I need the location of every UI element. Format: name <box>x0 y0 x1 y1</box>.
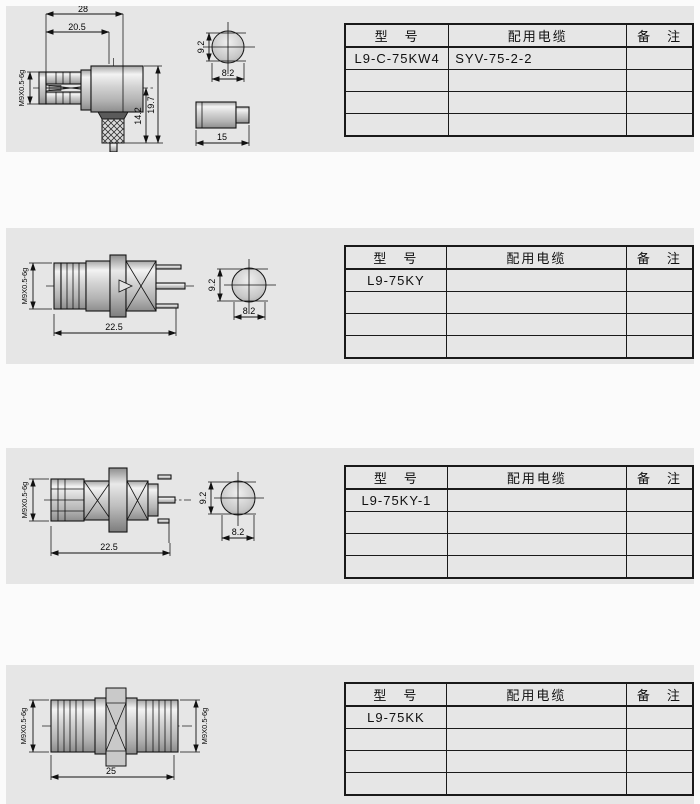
table-header-row: 型 号 配用电缆 备 注 <box>345 246 693 269</box>
table-row: L9-75KY <box>345 269 693 292</box>
table-header-row: 型 号 配用电缆 备 注 <box>345 24 693 47</box>
table-row <box>345 92 693 114</box>
table-row <box>345 512 693 534</box>
remarks-cell <box>626 706 693 729</box>
section-panel-2: M9X0.5-6g 22.5 9.2 8.2 型 号 配用电缆 备 注 L9-7… <box>6 228 694 364</box>
cable-cell <box>446 773 626 796</box>
header-remarks: 备 注 <box>627 24 693 47</box>
cable-cell <box>446 292 626 314</box>
header-remarks: 备 注 <box>626 246 693 269</box>
header-model: 型 号 <box>345 466 447 489</box>
spec-table-4: 型 号 配用电缆 备 注 L9-75KK <box>344 682 694 796</box>
cable-cell <box>446 706 626 729</box>
drawing-bulkhead-jack: M9X0.5-6g 22.5 9.2 8.2 <box>6 228 341 364</box>
dim-label-overall-length: 22.5 <box>100 542 118 552</box>
header-remarks: 备 注 <box>626 683 693 706</box>
header-remarks: 备 注 <box>626 466 693 489</box>
remarks-cell <box>627 92 693 114</box>
table-row <box>345 751 693 773</box>
table-row <box>345 70 693 92</box>
model-cell <box>345 114 449 137</box>
model-cell <box>345 292 446 314</box>
spec-table-2: 型 号 配用电缆 备 注 L9-75KY <box>344 245 694 359</box>
remarks-cell <box>626 773 693 796</box>
header-cable: 配用电缆 <box>446 683 626 706</box>
cable-cell <box>449 92 627 114</box>
header-model: 型 号 <box>345 683 446 706</box>
dim-label-thread: M9X0.5-6g <box>20 482 29 519</box>
cable-cell <box>447 512 626 534</box>
drawing-pcb-jack: M9X0.5-6g 22.5 9.2 8.2 <box>6 448 341 584</box>
dim-label-body-width: 20.5 <box>68 22 86 32</box>
table-row <box>345 292 693 314</box>
dim-label-overall-height: 19.7 <box>146 96 156 114</box>
dim-label-overall-width: 28 <box>78 6 88 14</box>
model-cell <box>345 534 447 556</box>
header-cable: 配用电缆 <box>449 24 627 47</box>
table-row <box>345 729 693 751</box>
remarks-cell <box>626 336 693 359</box>
model-cell: L9-75KY <box>345 269 446 292</box>
model-cell <box>345 751 446 773</box>
table-row <box>345 336 693 359</box>
dim-label-front-width: 8.2 <box>243 306 256 316</box>
model-cell: L9-75KY-1 <box>345 489 447 512</box>
remarks-cell <box>627 114 693 137</box>
remarks-cell <box>626 269 693 292</box>
cable-cell <box>449 70 627 92</box>
model-cell <box>345 512 447 534</box>
header-cable: 配用电缆 <box>447 466 626 489</box>
remarks-cell <box>626 314 693 336</box>
section-panel-4: M9X0.5-6g M9X0.5-6g 25 型 号 配用电缆 备 注 L9-7… <box>6 665 694 804</box>
drawing-right-angle-connector: 28 20.5 14.2 19.7 <box>6 6 341 152</box>
dim-label-front-height: 9.2 <box>207 279 217 292</box>
dim-label-overall-length: 25 <box>106 766 116 776</box>
table-row <box>345 773 693 796</box>
model-cell <box>345 70 449 92</box>
cable-cell <box>447 556 626 579</box>
spec-table-3: 型 号 配用电缆 备 注 L9-75KY-1 <box>344 465 694 579</box>
model-cell <box>345 314 446 336</box>
cable-cell <box>446 729 626 751</box>
remarks-cell <box>627 70 693 92</box>
dim-label-overall-length: 22.5 <box>105 322 123 332</box>
remarks-cell <box>627 47 693 70</box>
dim-label-inner-height: 14.2 <box>133 107 143 125</box>
remarks-cell <box>626 534 693 556</box>
header-model: 型 号 <box>345 24 449 47</box>
model-cell: L9-C-75KW4 <box>345 47 449 70</box>
table-row: L9-75KK <box>345 706 693 729</box>
model-cell <box>345 92 449 114</box>
table-row <box>345 556 693 579</box>
header-cable: 配用电缆 <box>446 246 626 269</box>
cable-cell <box>447 489 626 512</box>
cable-cell <box>446 314 626 336</box>
cable-cell <box>449 114 627 137</box>
dim-label-thread: M9X0.5-6g <box>20 268 29 305</box>
drawing-double-adapter: M9X0.5-6g M9X0.5-6g 25 <box>6 665 341 804</box>
dim-label-sleeve-length: 15 <box>217 132 227 142</box>
remarks-cell <box>626 489 693 512</box>
spec-table-1: 型 号 配用电缆 备 注 L9-C-75KW4 SYV-75-2-2 <box>344 23 694 137</box>
remarks-cell <box>626 512 693 534</box>
table-row <box>345 534 693 556</box>
section-panel-1: 28 20.5 14.2 19.7 <box>6 6 694 152</box>
section-panel-3: M9X0.5-6g 22.5 9.2 8.2 型 号 配用电缆 备 注 L9-7… <box>6 448 694 584</box>
dim-label-thread-left: M9X0.5-6g <box>19 708 28 745</box>
model-cell: L9-75KK <box>345 706 446 729</box>
header-model: 型 号 <box>345 246 446 269</box>
table-row <box>345 114 693 137</box>
cable-cell <box>446 336 626 359</box>
dim-label-front-height: 9.2 <box>198 492 208 505</box>
remarks-cell <box>626 729 693 751</box>
cable-cell <box>447 534 626 556</box>
cable-cell: SYV-75-2-2 <box>449 47 627 70</box>
model-cell <box>345 773 446 796</box>
dim-label-thread: M9X0.5-6g <box>17 70 26 107</box>
remarks-cell <box>626 292 693 314</box>
remarks-cell <box>626 751 693 773</box>
cable-cell <box>446 269 626 292</box>
table-row <box>345 314 693 336</box>
table-header-row: 型 号 配用电缆 备 注 <box>345 683 693 706</box>
dim-label-front-width: 8.2 <box>232 527 245 537</box>
model-cell <box>345 336 446 359</box>
model-cell <box>345 729 446 751</box>
table-row: L9-75KY-1 <box>345 489 693 512</box>
model-cell <box>345 556 447 579</box>
cable-cell <box>446 751 626 773</box>
table-row: L9-C-75KW4 SYV-75-2-2 <box>345 47 693 70</box>
dim-label-front-width: 8.2 <box>222 68 235 78</box>
table-header-row: 型 号 配用电缆 备 注 <box>345 466 693 489</box>
dim-label-front-height: 9.2 <box>196 41 206 54</box>
remarks-cell <box>626 556 693 579</box>
dim-label-thread-right: M9X0.5-6g <box>200 708 209 745</box>
